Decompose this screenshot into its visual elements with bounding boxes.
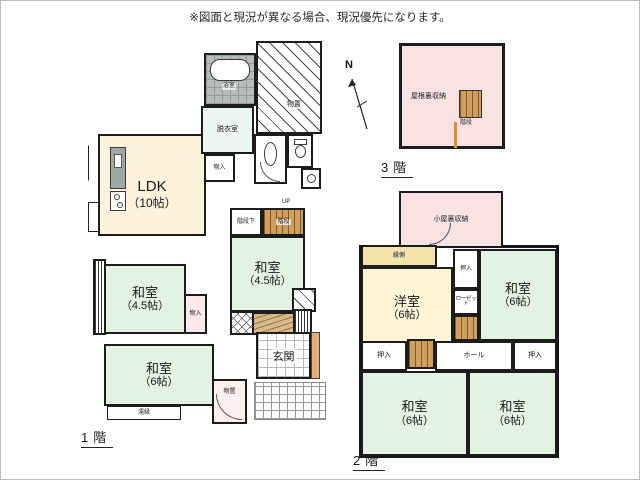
door-arc [429,223,451,245]
room-small-sink [301,168,321,189]
shutter-box [93,259,106,335]
room-washitsu-6-f2-tr: 和室 （6帖） [479,249,557,341]
room-washroom [254,134,287,184]
room-label: 物置 [223,389,235,396]
kitchen-counter [110,147,126,189]
room-label: 階段下 [237,219,255,226]
room-dressing: 脱衣室 [201,106,254,154]
burner-icon [117,202,123,208]
stairs-f3 [459,90,482,118]
room-label: ホール [464,352,485,360]
room-closet-top: 物入 [204,154,235,182]
toilet-icon [295,145,306,158]
stairs-label-f3: 階段 [460,120,472,127]
room-label: 和室 （4.5帖） [121,285,169,314]
room-label: 洋室 （6帖） [387,294,426,323]
room-label: 和室 （6帖） [493,399,532,428]
stove-icon [110,191,126,211]
room-label: 濡縁 [138,410,150,417]
room-label: 押入 [528,352,542,360]
room-label: 和室 （6帖） [139,361,178,390]
floor3-label: 3階 [381,157,413,178]
disclaimer-note: ※図面と現況が異なる場合、現況優先になります。 [189,9,450,25]
washbasin-icon [264,142,277,166]
room-label: 小屋裏収納 [434,216,469,224]
room-label: 和室 （6帖） [498,281,537,310]
room-label: 玄関 [271,348,297,364]
porch [254,382,326,420]
room-label: LDK （10帖） [127,178,176,210]
door-arc [216,394,242,420]
room-label: 和室 （6帖） [395,399,434,428]
north-arrow-icon [343,71,377,135]
room-washitsu-6-f2-br: 和室 （6帖） [468,371,557,456]
room-closet-mid: 物入 [184,294,207,334]
room-label: 浴室 [222,83,236,90]
room-closet-f2: ローゼット [453,289,479,315]
room-toilet [287,134,313,168]
open-veranda: 濡縁 [107,406,181,420]
room-entrance: 玄関 [256,332,311,379]
room-label: 押入 [460,266,472,273]
small-sink-icon [307,174,316,183]
room-oshiire-top-f2: 押入 [453,249,479,289]
bathtub-icon [210,59,250,81]
room-storage-bottom: 物置 [212,379,247,424]
room-label: 押入 [377,352,391,360]
stairs-f2-up [453,315,479,341]
room-label: 物入 [189,311,201,318]
room-storage-top: 物置 [256,41,322,134]
room-label: 物入 [213,165,225,172]
room-label: 脱衣室 [217,126,238,134]
stairs-f2-down [407,339,435,369]
room-bathroom: 浴室 [204,53,256,106]
room-oshiire-right-f2: 押入 [513,341,557,371]
room-label: ローゼット [455,297,477,308]
room-label: 縁側 [393,253,405,260]
stairs-f1: 階段 [262,208,305,236]
kitchen-sink-icon [114,154,122,168]
room-label: 物置 [286,101,302,109]
room-washitsu-4-5-left: 和室 （4.5帖） [104,264,186,334]
room-label: 和室 （4.5帖） [243,260,291,289]
room-attic-storage-f3: 屋根裏収納 階段 [399,43,505,149]
stairs-up-label: UP [281,199,291,206]
under-stairs-storage: 階段下 [230,208,262,236]
room-label: 屋根裏収納 [411,93,446,101]
handrail-bar [454,122,457,148]
room-oshiire-left-f2: 押入 [361,341,407,371]
room-veranda-f2: 縁側 [361,245,437,267]
entrance-accent-strip [311,332,320,379]
floor2-label: 2階 [353,450,385,471]
room-washitsu-6-f1: 和室 （6帖） [104,344,214,406]
tokonoma-side-box [230,311,254,335]
floor1-label: 1階 [81,427,113,448]
north-label: N [345,59,353,71]
room-label: 階段 [276,219,290,226]
burner-icon [114,194,120,200]
room-attic-storage-f2: 小屋裏収納 [399,191,503,248]
room-washitsu-6-f2-bl: 和室 （6帖） [361,371,468,456]
room-hall-f2: ホール [435,341,513,371]
floor-plan-image: ※図面と現況が異なる場合、現況優先になります。 LDK （10帖） 浴室 物置 … [0,0,640,480]
